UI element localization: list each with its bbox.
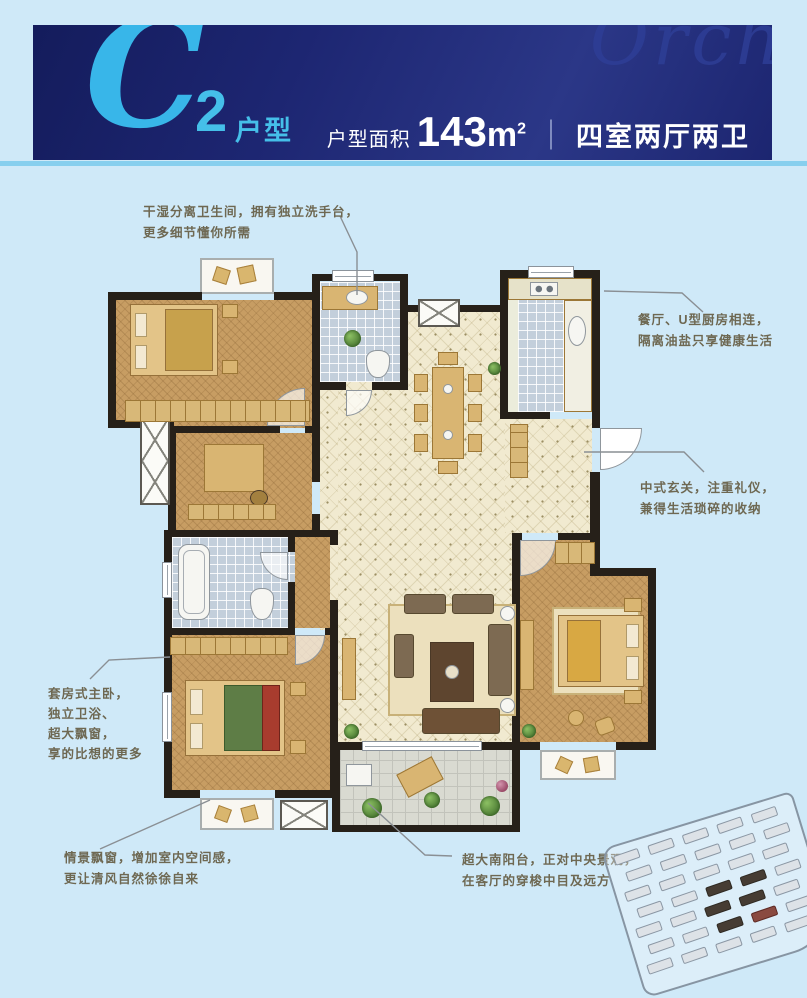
wall bbox=[108, 292, 116, 428]
site-plan-building bbox=[749, 925, 777, 943]
site-plan-building bbox=[727, 853, 755, 871]
bay-window-master bbox=[200, 798, 274, 830]
window-kitchen bbox=[528, 266, 574, 278]
pillow bbox=[190, 689, 203, 715]
kitchen-sink bbox=[568, 316, 586, 346]
annotation-line: 独立卫浴、 bbox=[48, 704, 143, 724]
wardrobe-master bbox=[170, 637, 288, 655]
door-arc-entry bbox=[600, 428, 642, 470]
site-plan-building bbox=[635, 921, 663, 939]
site-plan-building bbox=[624, 884, 652, 902]
bay-window-north bbox=[200, 258, 274, 294]
annotation-bath-top: 干湿分离卫生间，拥有独立洗手台， 更多细节懂你所需 bbox=[143, 202, 359, 244]
site-plan-building bbox=[658, 874, 686, 892]
wall bbox=[164, 790, 200, 798]
sofa-top bbox=[452, 594, 494, 614]
pillow bbox=[555, 756, 574, 775]
wall bbox=[332, 825, 520, 832]
shoe-cabinet bbox=[510, 424, 528, 478]
table-decor bbox=[443, 430, 453, 440]
wall bbox=[590, 568, 656, 576]
pillow bbox=[135, 345, 147, 369]
wall bbox=[312, 274, 320, 292]
pillow bbox=[214, 805, 232, 823]
site-plan-building bbox=[682, 827, 710, 845]
wall bbox=[400, 274, 408, 390]
wall bbox=[558, 533, 600, 540]
area-unit: m2 bbox=[487, 116, 526, 154]
pillow bbox=[135, 313, 147, 337]
site-plan-building bbox=[646, 957, 674, 975]
site-plan-building bbox=[716, 816, 744, 834]
pillow bbox=[190, 723, 203, 749]
cabinet-study bbox=[188, 504, 276, 520]
pillow bbox=[626, 656, 639, 680]
dining-chair bbox=[468, 404, 482, 422]
sofa-top bbox=[404, 594, 446, 614]
annotation-master: 套房式主卧， 独立卫浴、 超大飘窗， 享的比想的更多 bbox=[48, 684, 143, 764]
header-divider: ｜ bbox=[536, 111, 566, 155]
side-lamp bbox=[500, 698, 515, 713]
wall bbox=[482, 742, 516, 750]
table-decor bbox=[445, 665, 459, 679]
site-plan-building bbox=[669, 910, 697, 928]
nightstand bbox=[624, 598, 642, 612]
wall bbox=[168, 426, 280, 433]
wall bbox=[592, 412, 600, 428]
annotation-line: 隔离油盐只享健康生活 bbox=[638, 331, 773, 352]
throw-blanket bbox=[262, 685, 280, 751]
site-plan-building bbox=[694, 843, 722, 861]
site-plan-building bbox=[625, 864, 653, 882]
area-value: 143m2 bbox=[417, 111, 526, 153]
laundry-sink bbox=[346, 764, 372, 786]
bed-master bbox=[185, 680, 285, 756]
dining-chair bbox=[468, 374, 482, 392]
plant bbox=[424, 792, 440, 808]
sofa-bottom bbox=[422, 708, 500, 734]
header-banner: Orch C 2 户型 户型面积 143m2 ｜ 四室两厅两卫 bbox=[33, 25, 772, 160]
site-plan-building bbox=[613, 848, 641, 866]
annotation-line: 兼得生活琐碎的收纳 bbox=[640, 499, 775, 520]
layout-spec: 四室两厅两卫 bbox=[576, 115, 750, 154]
logo-c: C bbox=[85, 25, 204, 149]
wall bbox=[164, 742, 172, 790]
site-plan-building bbox=[693, 863, 721, 881]
site-plan-building bbox=[682, 926, 710, 944]
annotation-line: 超大飘窗， bbox=[48, 724, 143, 744]
bed-bedroom-4 bbox=[558, 615, 644, 687]
annotation-line: 更让清风自然徐徐自来 bbox=[64, 869, 240, 890]
logo-number: 2 bbox=[195, 83, 227, 141]
plant bbox=[480, 796, 500, 816]
site-plan-building bbox=[784, 915, 807, 933]
wall bbox=[164, 530, 172, 562]
site-plan-building bbox=[705, 879, 733, 897]
ac-platform-icon bbox=[140, 417, 170, 505]
side-lamp bbox=[500, 606, 515, 621]
wall bbox=[512, 750, 520, 832]
site-plan-building bbox=[739, 869, 767, 887]
site-plan-building bbox=[671, 890, 699, 908]
site-plan-building bbox=[704, 900, 732, 918]
site-plan-building bbox=[751, 806, 779, 824]
wall bbox=[500, 270, 508, 415]
site-plan-building bbox=[716, 916, 744, 934]
wall bbox=[288, 537, 295, 552]
flue-shaft-icon bbox=[418, 299, 460, 327]
plant bbox=[496, 780, 508, 792]
annotation-bay-window: 情景飘窗，增加室内空间感， 更让清风自然徐徐自来 bbox=[64, 848, 240, 890]
wall bbox=[648, 568, 656, 750]
header-underline-stripe bbox=[0, 161, 807, 166]
wall bbox=[288, 582, 295, 628]
annotation-line: 干湿分离卫生间，拥有独立洗手台， bbox=[143, 202, 359, 223]
site-plan-building bbox=[762, 842, 790, 860]
pillow bbox=[626, 624, 639, 648]
nightstand bbox=[222, 304, 238, 318]
plant bbox=[344, 330, 361, 347]
nightstand bbox=[290, 682, 306, 696]
annotation-kitchen: 餐厅、U型厨房相连， 隔离油盐只享健康生活 bbox=[638, 310, 773, 352]
wall bbox=[338, 742, 362, 750]
annotation-line: 餐厅、U型厨房相连， bbox=[638, 310, 773, 331]
annotation-line: 更多细节懂你所需 bbox=[143, 223, 359, 244]
site-plan-building bbox=[647, 937, 675, 955]
area-number: 143 bbox=[417, 108, 487, 155]
plant bbox=[362, 798, 382, 818]
wall bbox=[312, 292, 320, 428]
wash-basin bbox=[346, 290, 368, 305]
wall bbox=[592, 270, 600, 420]
bay-window-bedroom-4 bbox=[540, 750, 616, 780]
stove bbox=[530, 282, 558, 296]
kitchen-floor-tiles bbox=[518, 300, 564, 412]
header-info: 户型面积 143m2 ｜ 四室两厅两卫 bbox=[327, 111, 750, 155]
site-plan-building bbox=[636, 900, 664, 918]
blanket bbox=[567, 620, 601, 682]
wall bbox=[616, 742, 656, 750]
pillow bbox=[583, 756, 600, 773]
balcony-slider-window bbox=[362, 741, 482, 751]
plant bbox=[522, 724, 536, 738]
annotation-line: 享的比想的更多 bbox=[48, 744, 143, 764]
pillow bbox=[212, 266, 231, 285]
pillow bbox=[240, 804, 258, 822]
site-plan-building bbox=[738, 889, 766, 907]
site-plan-building bbox=[751, 905, 779, 923]
master-suite-corridor bbox=[295, 537, 330, 628]
wardrobe-bedroom-4 bbox=[555, 542, 595, 564]
wall bbox=[168, 530, 330, 537]
annotation-line: 中式玄关，注重礼仪， bbox=[640, 478, 775, 499]
wall bbox=[500, 412, 550, 419]
wall bbox=[332, 750, 340, 832]
logo-suffix: 户型 bbox=[235, 109, 293, 148]
wall bbox=[275, 790, 338, 798]
ac-platform-south-icon bbox=[280, 800, 328, 830]
header-watermark: Orch bbox=[590, 25, 772, 81]
armchair bbox=[394, 634, 414, 678]
site-plan-building bbox=[773, 878, 801, 896]
annotation-line: 情景飘窗，增加室内空间感， bbox=[64, 848, 240, 869]
site-plan-building bbox=[763, 822, 791, 840]
site-plan-building bbox=[647, 837, 675, 855]
wall bbox=[312, 514, 320, 530]
window-bath-master bbox=[162, 562, 172, 598]
dining-chair bbox=[414, 434, 428, 452]
pillow bbox=[236, 264, 256, 284]
site-plan-building bbox=[785, 895, 807, 913]
area-label: 户型面积 bbox=[327, 123, 411, 152]
bed-bedroom-2 bbox=[130, 304, 218, 376]
site-plan-building bbox=[774, 858, 802, 876]
wardrobe-bedroom-2 bbox=[125, 400, 310, 422]
window-bath-shared bbox=[332, 270, 374, 282]
window-master bbox=[162, 692, 172, 742]
stool bbox=[568, 710, 584, 726]
desk-study bbox=[204, 444, 264, 492]
plant bbox=[488, 362, 501, 375]
site-plan-building bbox=[681, 946, 709, 964]
wall bbox=[312, 382, 346, 390]
annotation-line: 套房式主卧， bbox=[48, 684, 143, 704]
floorplan bbox=[100, 252, 660, 844]
dining-chair bbox=[438, 461, 458, 474]
site-plan-building bbox=[728, 832, 756, 850]
table-decor bbox=[443, 384, 453, 394]
wall bbox=[372, 382, 408, 390]
wall bbox=[164, 628, 295, 635]
site-plan-building bbox=[715, 936, 743, 954]
wall bbox=[312, 428, 320, 482]
dresser-bedroom-4 bbox=[520, 620, 534, 690]
plant bbox=[344, 724, 359, 739]
nightstand bbox=[290, 740, 306, 754]
nightstand bbox=[624, 690, 642, 704]
wall bbox=[330, 530, 338, 545]
site-plan-building bbox=[660, 853, 688, 871]
dining-chair bbox=[438, 352, 458, 365]
dining-chair bbox=[468, 434, 482, 452]
blanket bbox=[165, 309, 213, 371]
nightstand bbox=[222, 360, 238, 374]
dining-chair bbox=[414, 404, 428, 422]
sofa-right bbox=[488, 624, 512, 696]
dining-table bbox=[432, 367, 464, 459]
wall bbox=[108, 292, 202, 300]
coffee-table bbox=[430, 642, 474, 702]
annotation-entry: 中式玄关，注重礼仪， 兼得生活琐碎的收纳 bbox=[640, 478, 775, 520]
console-bench bbox=[342, 638, 356, 700]
bathtub bbox=[178, 544, 210, 620]
dining-chair bbox=[414, 374, 428, 392]
blanket bbox=[224, 685, 264, 751]
